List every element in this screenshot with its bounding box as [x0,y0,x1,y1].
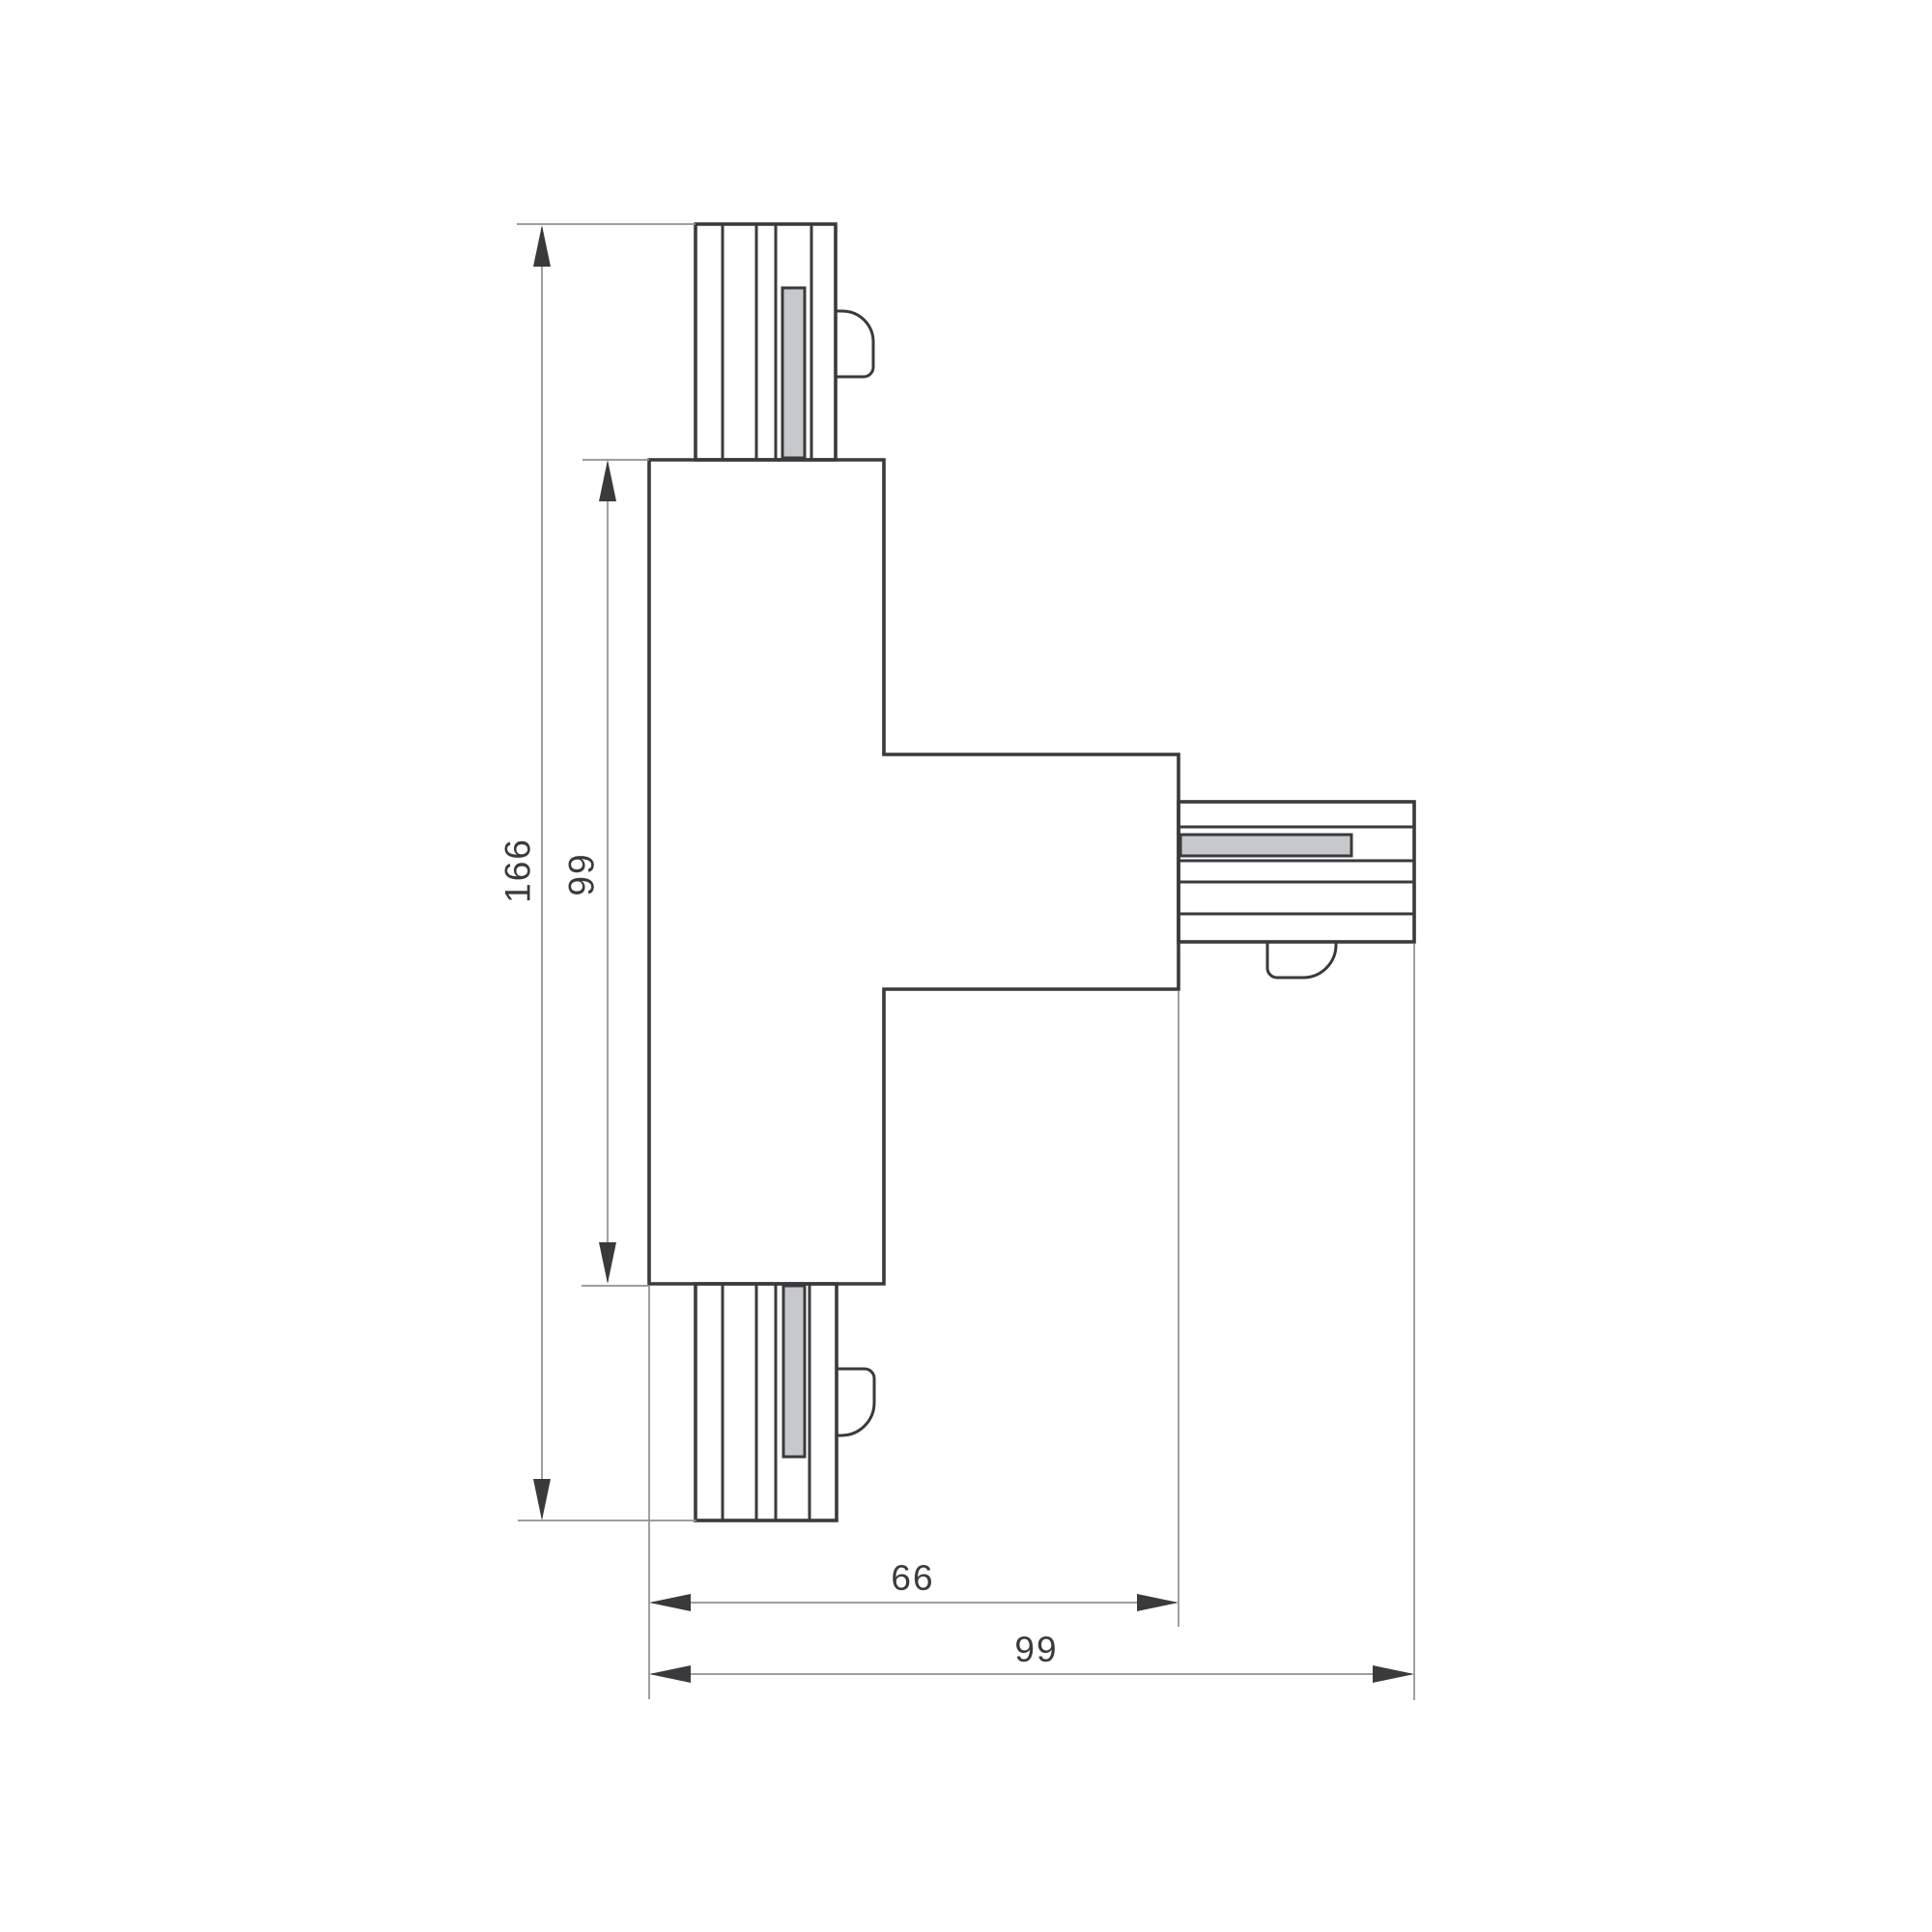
t-connector-part [649,224,1414,1520]
t-body-outline [649,460,1179,1284]
right-connector-outline [1179,802,1414,942]
dim-label-overall-width: 99 [1014,1630,1058,1669]
bottom-connector-contact-bar [783,1286,805,1457]
dim-label-arm-reach: 66 [891,1558,934,1598]
right-connector [1179,802,1414,978]
arrow-overall-width-right [1373,1665,1414,1683]
arrow-overall-width-left [649,1665,691,1683]
technical-drawing: 166 99 66 99 [0,0,1932,1932]
dim-overall-height: 166 [498,225,552,1520]
top-connector [696,224,873,460]
arrow-overall-height-up [533,225,551,267]
arrow-body-height-down [599,1242,616,1284]
top-connector-contact-bar [782,288,805,458]
drawing-canvas: 166 99 66 99 [0,0,1932,1932]
arrow-overall-height-down [533,1479,551,1520]
top-connector-outline [696,224,836,460]
dim-body-height: 99 [562,460,617,1284]
arrow-arm-reach-left [649,1594,691,1611]
right-connector-contact-bar [1180,835,1351,856]
bottom-connector-outline [696,1284,837,1520]
arrow-arm-reach-right [1137,1594,1179,1611]
dim-overall-width: 99 [649,1630,1414,1683]
bottom-connector [696,1284,874,1520]
dim-label-overall-height: 166 [498,838,538,903]
right-connector-latch [1267,942,1336,978]
bottom-connector-latch [837,1369,874,1435]
dim-arm-reach: 66 [649,1558,1179,1611]
arrow-body-height-up [599,460,616,501]
top-connector-latch [836,311,873,377]
dimensions: 166 99 66 99 [498,224,1415,1700]
dim-label-body-height: 99 [562,852,602,895]
